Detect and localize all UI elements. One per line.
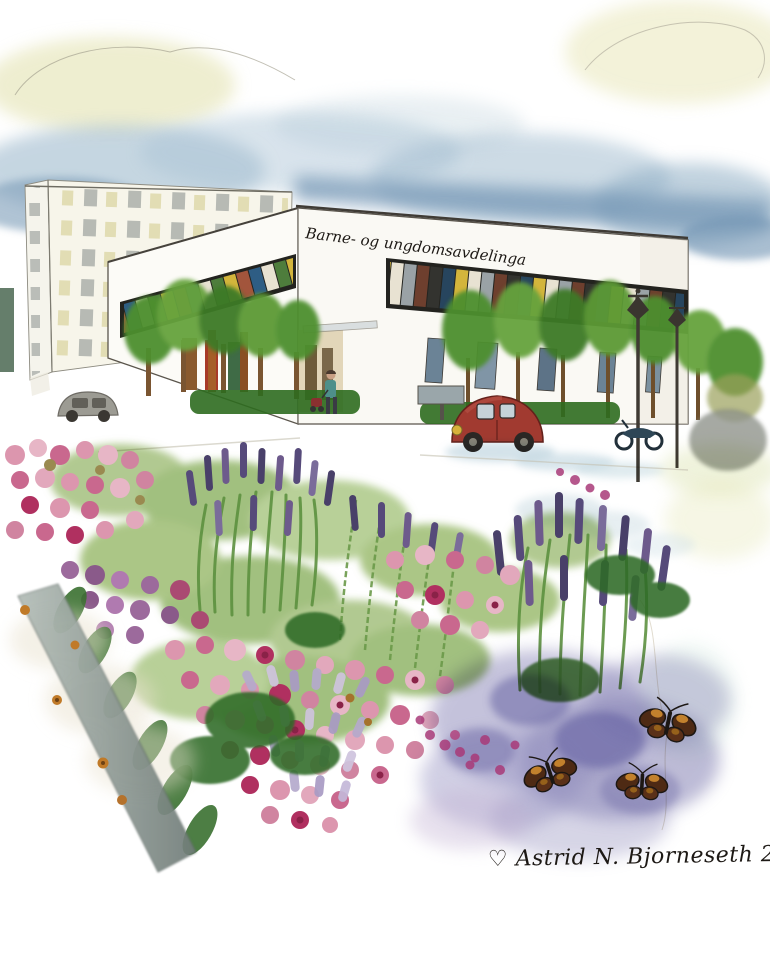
artist-signature: ♡ Astrid N. Bjorneseth 2015 [488,841,770,872]
red-car-window-2 [500,404,515,418]
red-car-headlight [452,425,462,435]
person-leg-2 [333,397,337,414]
cloud-left [0,37,235,133]
stroller-wheel-1 [310,406,316,412]
red-car-window-1 [477,404,494,419]
left-edge-bush [0,288,14,372]
highrise-windows-side [29,184,50,376]
flowerbed [5,439,730,860]
stroller-wheel-2 [318,406,324,412]
gray-car [58,392,118,422]
watercolor-painting: Barne- og ungdomsavdelinga [0,0,770,962]
painting-canvas: Barne- og ungdomsavdelinga [0,0,770,962]
person-leg-1 [326,397,330,414]
stroller-body [311,398,322,407]
cloud-right [565,0,770,104]
person-torso [325,380,336,398]
